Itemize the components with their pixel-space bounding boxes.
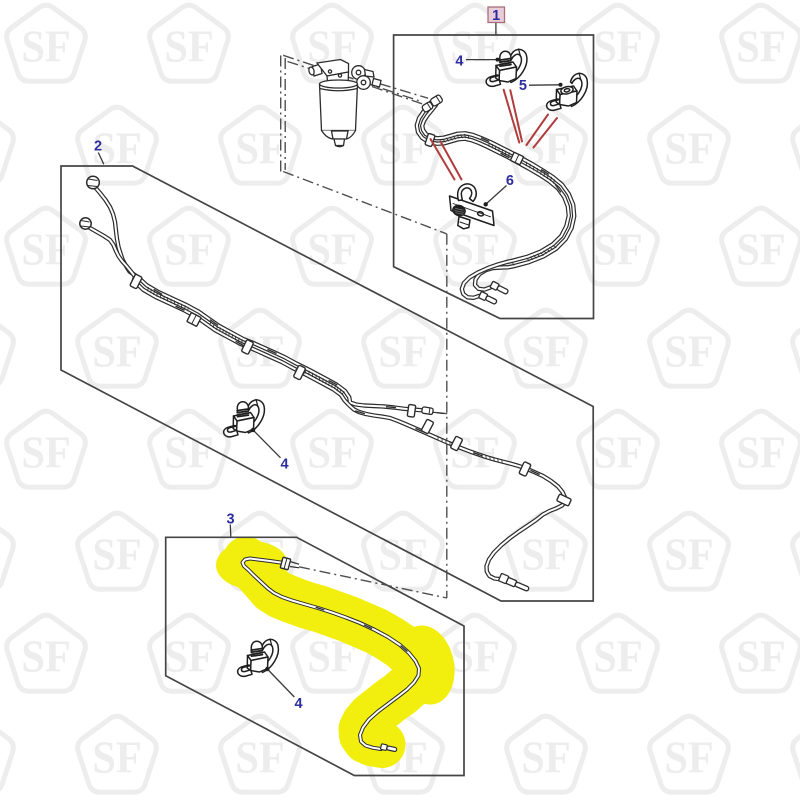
- svg-text:4: 4: [295, 696, 303, 712]
- svg-text:2: 2: [94, 138, 102, 154]
- svg-text:4: 4: [455, 53, 463, 69]
- svg-text:5: 5: [519, 78, 527, 94]
- svg-text:6: 6: [506, 173, 514, 189]
- svg-text:1: 1: [492, 8, 500, 24]
- svg-text:4: 4: [281, 456, 289, 472]
- svg-text:3: 3: [226, 511, 234, 527]
